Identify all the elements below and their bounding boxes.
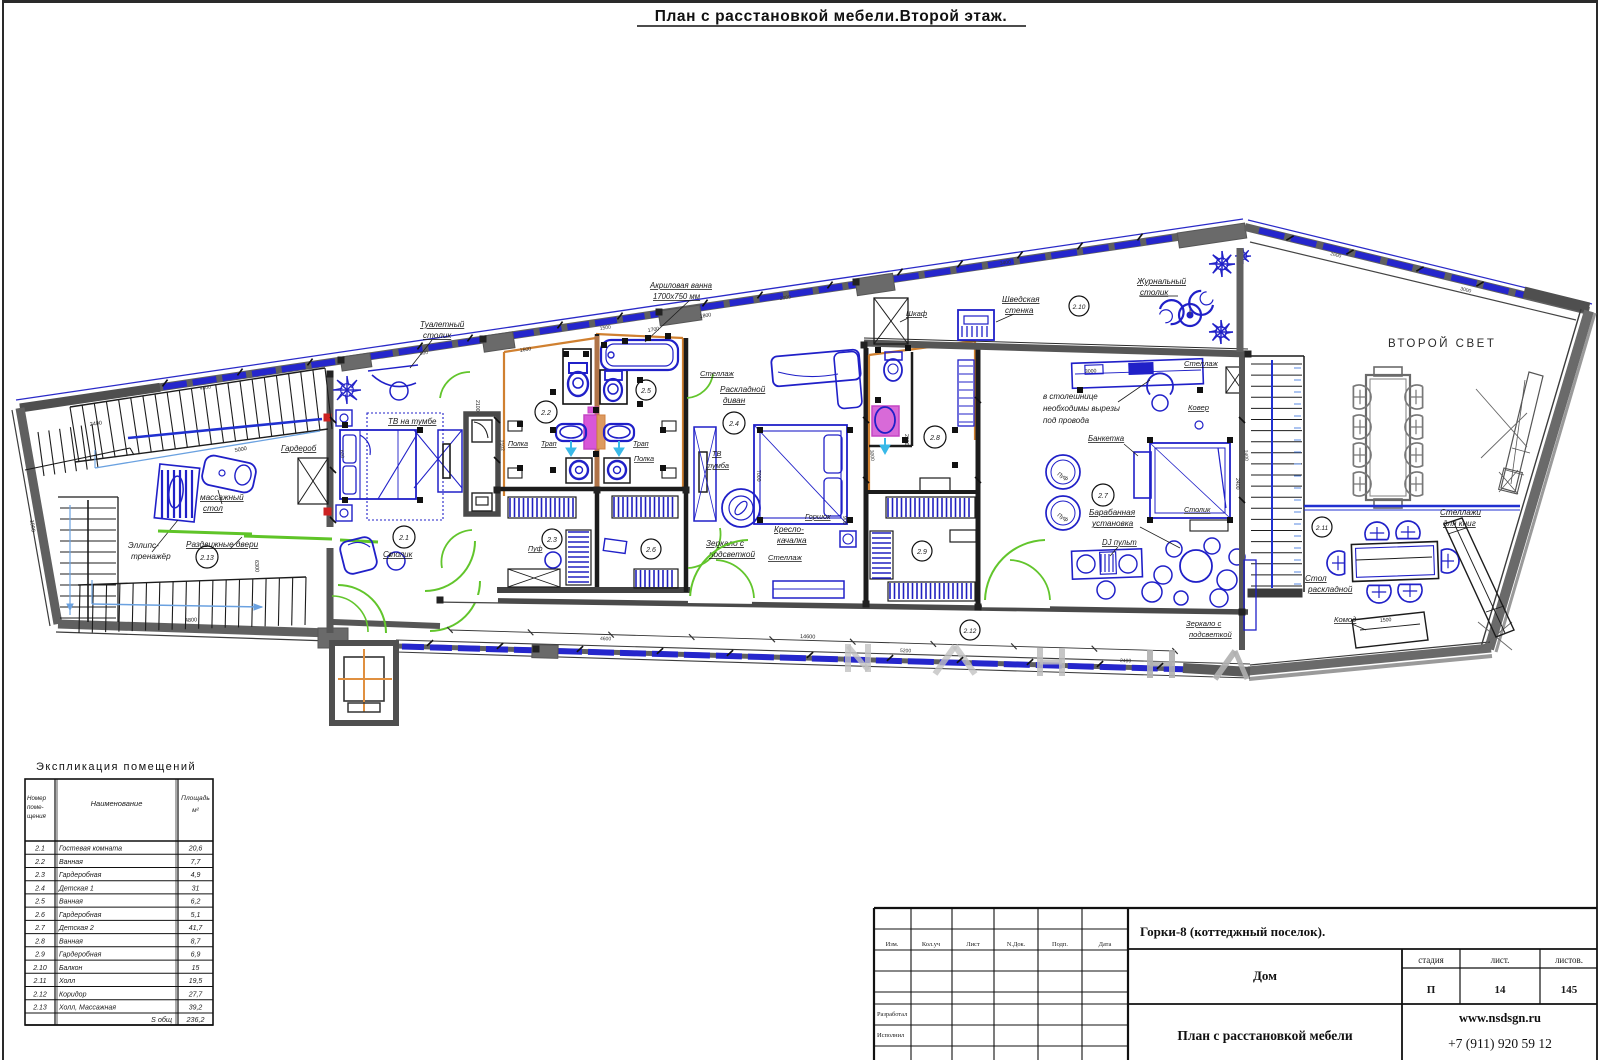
svg-text:Кол.уч: Кол.уч	[922, 941, 941, 948]
svg-text:2.3: 2.3	[546, 537, 557, 544]
svg-text:Стеллаж: Стеллаж	[700, 369, 735, 378]
svg-text:2.2: 2.2	[540, 410, 551, 417]
svg-text:качалка: качалка	[777, 536, 807, 545]
svg-text:4600: 4600	[600, 636, 612, 642]
svg-text:236,2: 236,2	[186, 1015, 205, 1024]
svg-text:стенка: стенка	[1005, 306, 1034, 315]
svg-text:2.9: 2.9	[916, 549, 927, 556]
svg-text:900: 900	[841, 516, 847, 525]
svg-text:4800: 4800	[185, 617, 198, 624]
svg-text:Балкон: Балкон	[59, 965, 83, 972]
svg-text:Горшок: Горшок	[805, 512, 831, 521]
svg-text:2.2: 2.2	[34, 859, 45, 866]
svg-text:2.10: 2.10	[32, 965, 47, 972]
svg-text:2.1: 2.1	[398, 535, 409, 542]
svg-text:14600: 14600	[800, 634, 815, 640]
svg-text:4,9: 4,9	[191, 872, 201, 879]
svg-text:20,6: 20,6	[188, 846, 203, 853]
svg-text:2.7: 2.7	[1097, 493, 1109, 500]
svg-text:1700x750 мм: 1700x750 мм	[653, 292, 701, 301]
svg-text:диван: диван	[723, 396, 746, 405]
svg-text:Дата: Дата	[1099, 941, 1112, 948]
svg-text:6300: 6300	[253, 560, 259, 572]
svg-text:Подп.: Подп.	[1052, 941, 1068, 948]
svg-text:6,9: 6,9	[191, 952, 201, 959]
svg-text:41,7: 41,7	[189, 925, 204, 932]
svg-text:Гардеробная: Гардеробная	[59, 911, 102, 919]
svg-text:Акриловая ванна: Акриловая ванна	[649, 281, 713, 290]
svg-text:2400: 2400	[1120, 658, 1132, 664]
svg-text:7000: 7000	[755, 470, 761, 482]
svg-text:Раздвижные двери: Раздвижные двери	[186, 540, 259, 549]
svg-text:Столик: Столик	[1184, 505, 1211, 514]
svg-text:Стеллаж: Стеллаж	[768, 553, 803, 562]
svg-text:N.Док.: N.Док.	[1007, 941, 1026, 948]
svg-text:Комод: Комод	[1334, 615, 1356, 624]
svg-text:Банкетка: Банкетка	[1088, 434, 1125, 443]
svg-text:установка: установка	[1091, 519, 1134, 528]
svg-text:раскладной: раскладной	[1307, 585, 1353, 594]
svg-text:Детская 1: Детская 1	[58, 885, 94, 892]
svg-text:Стеллаж: Стеллаж	[1184, 359, 1219, 368]
svg-text:5,1: 5,1	[191, 912, 201, 919]
svg-text:2.3: 2.3	[34, 872, 45, 879]
svg-text:Шведская: Шведская	[1002, 295, 1040, 304]
svg-text:2.5: 2.5	[640, 388, 651, 395]
svg-text:Шкаф: Шкаф	[906, 309, 928, 318]
svg-text:39,2: 39,2	[189, 1005, 203, 1012]
svg-text:2.13: 2.13	[32, 1005, 47, 1012]
svg-text:ВТОРОЙ СВЕТ: ВТОРОЙ СВЕТ	[1388, 337, 1496, 350]
svg-text:800: 800	[419, 350, 428, 357]
svg-text:м²: м²	[192, 807, 200, 814]
svg-text:в столешнице: в столешнице	[1043, 392, 1098, 401]
svg-text:тумба: тумба	[706, 461, 729, 470]
svg-text:31: 31	[192, 885, 200, 892]
svg-text:массажный: массажный	[200, 493, 244, 502]
svg-text:2.13: 2.13	[199, 555, 214, 562]
svg-text:щения: щения	[27, 813, 47, 820]
svg-text:Разработал: Разработал	[877, 1011, 908, 1018]
svg-text:2.6: 2.6	[34, 912, 45, 919]
svg-text:Исполнил: Исполнил	[877, 1032, 905, 1039]
svg-text:Холл: Холл	[58, 978, 75, 985]
svg-text:15: 15	[192, 965, 200, 972]
svg-text:2102: 2102	[498, 440, 505, 452]
svg-text:2.11: 2.11	[32, 978, 46, 985]
svg-text:Гардеробная: Гардеробная	[59, 871, 102, 879]
svg-text:DJ пульт: DJ пульт	[1102, 538, 1137, 547]
svg-text:стол: стол	[203, 504, 223, 513]
svg-text:2.8: 2.8	[34, 938, 45, 945]
svg-text:145: 145	[1561, 984, 1578, 996]
svg-text:2.1: 2.1	[34, 846, 45, 853]
svg-text:Горки-8 (коттеджный поселок).: Горки-8 (коттеджный поселок).	[1140, 924, 1325, 939]
svg-text:Барабанная: Барабанная	[1089, 508, 1136, 517]
svg-text:Ковер: Ковер	[1188, 403, 1209, 412]
svg-text:лист.: лист.	[1491, 955, 1510, 965]
svg-text:Ванная: Ванная	[59, 899, 83, 906]
svg-text:19,5: 19,5	[189, 978, 203, 985]
svg-text:2.12: 2.12	[963, 628, 977, 635]
svg-text:3000: 3000	[1085, 368, 1097, 375]
svg-text:под провода: под провода	[1043, 416, 1090, 425]
svg-text:Коридор: Коридор	[59, 990, 87, 998]
svg-text:План с расстановкой мебели.Вто: План с расстановкой мебели.Второй этаж.	[655, 8, 1008, 25]
svg-text:стадия: стадия	[1418, 955, 1444, 965]
svg-text:14: 14	[1495, 984, 1507, 996]
svg-text:2100: 2100	[474, 400, 480, 412]
svg-text:Наименование: Наименование	[91, 799, 143, 808]
svg-text:листов.: листов.	[1555, 955, 1583, 965]
svg-text:необходимы вырезы: необходимы вырезы	[1043, 404, 1120, 413]
svg-text:Экспликация помещений: Экспликация помещений	[36, 761, 196, 773]
svg-text:Стеллажи: Стеллажи	[1440, 508, 1481, 517]
svg-text:Гардероб: Гардероб	[281, 444, 317, 453]
svg-text:Детская 2: Детская 2	[58, 925, 94, 932]
svg-text:ТВ на тумбе: ТВ на тумбе	[388, 417, 437, 426]
svg-text:2.12: 2.12	[32, 991, 47, 998]
svg-text:Гостевая комната: Гостевая комната	[59, 846, 122, 853]
svg-text:5200: 5200	[900, 648, 912, 654]
svg-text:ТВ: ТВ	[712, 449, 722, 458]
svg-text:Зеркало с: Зеркало с	[1186, 619, 1221, 628]
svg-text:2.11: 2.11	[1315, 525, 1329, 532]
svg-text:2.4: 2.4	[34, 885, 45, 892]
svg-text:2.8: 2.8	[929, 435, 940, 442]
svg-text:+7 (911) 920 59 12: +7 (911) 920 59 12	[1448, 1036, 1552, 1051]
svg-text:2400: 2400	[1242, 450, 1249, 462]
svg-text:Номер: Номер	[27, 795, 47, 802]
svg-text:Трап: Трап	[633, 441, 649, 448]
svg-text:3000: 3000	[868, 450, 875, 462]
svg-text:600: 600	[338, 450, 345, 459]
svg-text:Ванная: Ванная	[59, 938, 83, 945]
svg-text:План с расстановкой мебели: План с расстановкой мебели	[1177, 1028, 1352, 1043]
svg-text:2.5: 2.5	[34, 899, 45, 906]
svg-text:2.4: 2.4	[728, 421, 739, 428]
svg-text:2400: 2400	[1234, 478, 1240, 490]
svg-text:Столик: Столик	[383, 550, 414, 559]
svg-text:Журнальный: Журнальный	[1136, 277, 1186, 286]
svg-text:П: П	[1427, 984, 1436, 996]
svg-text:2.6: 2.6	[645, 547, 656, 554]
svg-text:Ванная: Ванная	[59, 859, 83, 866]
svg-text:подсветкой: подсветкой	[1189, 630, 1232, 639]
svg-text:2.9: 2.9	[34, 952, 45, 959]
svg-text:Гардеробная: Гардеробная	[59, 951, 102, 959]
svg-text:7,7: 7,7	[191, 859, 202, 866]
svg-text:тренажёр: тренажёр	[131, 552, 171, 561]
svg-text:Кресло-: Кресло-	[774, 525, 804, 534]
svg-text:Туалетный: Туалетный	[420, 320, 465, 329]
svg-text:Лист: Лист	[966, 941, 980, 948]
svg-text:27,7: 27,7	[188, 991, 204, 998]
svg-text:Изм.: Изм.	[886, 941, 899, 948]
svg-text:поме-: поме-	[27, 804, 44, 811]
svg-text:8,7: 8,7	[191, 938, 202, 945]
svg-text:S общ: S общ	[151, 1015, 172, 1024]
svg-text:6,2: 6,2	[191, 899, 201, 906]
svg-text:Пуф: Пуф	[528, 546, 543, 553]
svg-text:www.nsdsgn.ru: www.nsdsgn.ru	[1459, 1011, 1541, 1025]
svg-text:для книг: для книг	[1443, 519, 1476, 528]
svg-text:Площадь: Площадь	[181, 794, 210, 802]
svg-text:Холл, Массажная: Холл, Массажная	[58, 1005, 116, 1012]
svg-text:2.7: 2.7	[34, 925, 46, 932]
svg-text:Полка: Полка	[634, 456, 654, 463]
svg-text:Полка: Полка	[508, 441, 528, 448]
svg-text:1500: 1500	[1380, 617, 1392, 624]
svg-text:столик: столик	[423, 331, 452, 340]
svg-text:Дом: Дом	[1253, 968, 1277, 983]
svg-text:2.10: 2.10	[1072, 304, 1086, 311]
svg-text:Трап: Трап	[541, 441, 557, 448]
svg-text:Стол: Стол	[1305, 574, 1327, 583]
svg-text:Раскладной: Раскладной	[720, 385, 766, 394]
